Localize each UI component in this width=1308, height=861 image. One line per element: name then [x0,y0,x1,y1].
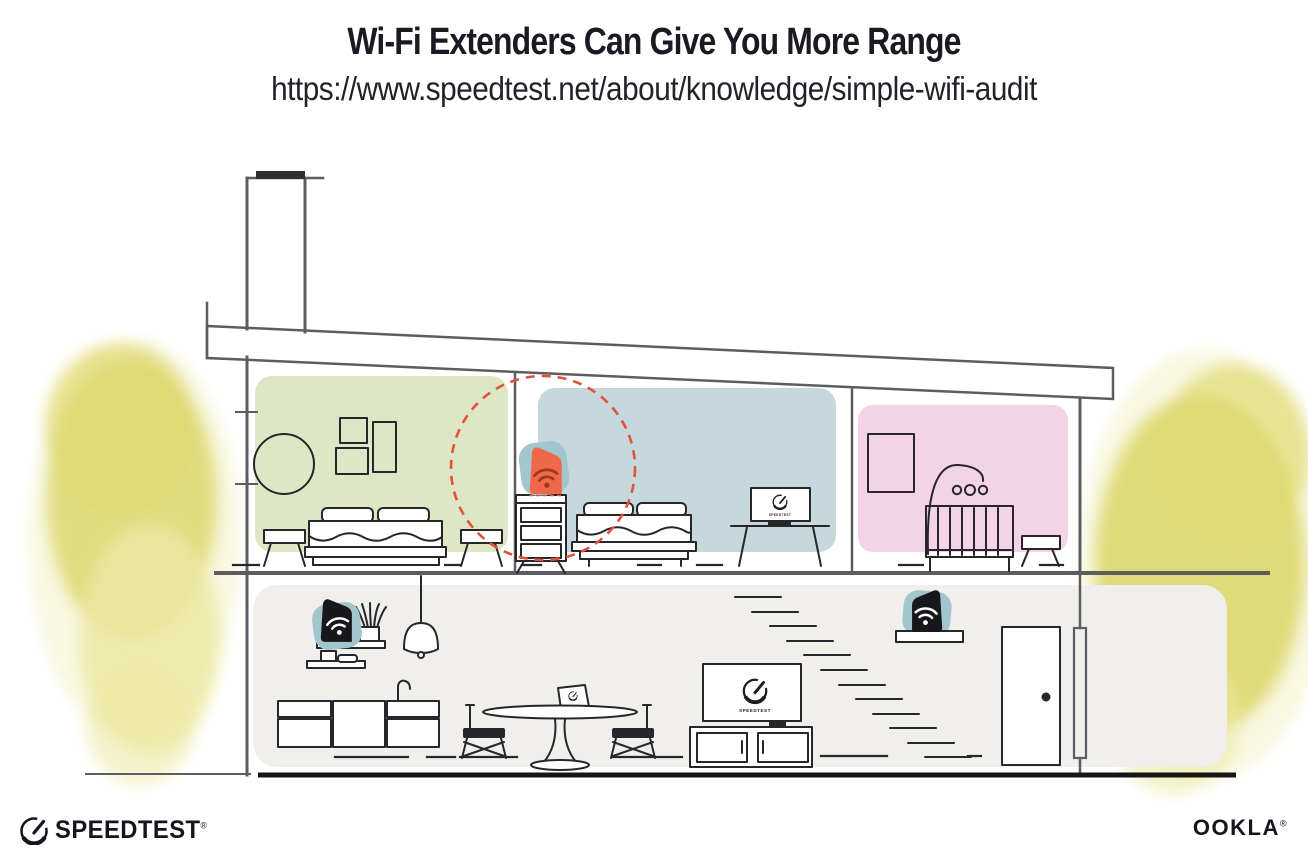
tv-area: SPEEDTEST [690,664,812,767]
registered-mark: ® [1280,819,1288,829]
shelf [896,631,963,642]
dresser [516,495,566,573]
infographic-page: Wi-Fi Extenders Can Give You More Range … [0,0,1308,861]
ookla-logo: OOKLA® [1193,815,1288,841]
wifi-router-living-room [310,599,363,651]
floor-marks-downstairs [335,756,981,757]
wifi-extender-highlighted [517,439,571,497]
speedtest-logo-text: SPEEDTEST® [55,816,207,845]
speedtest-gauge-icon [20,817,48,845]
foliage-left [30,340,240,785]
ookla-logo-text: OOKLA [1193,815,1280,840]
registered-mark: ® [200,821,207,831]
chimney [247,171,323,332]
speedtest-logo: SPEEDTEST® [20,816,215,845]
house-illustration: SPEEDTEST [0,0,1308,861]
tv-screen-label: SPEEDTEST [769,513,792,517]
entry-door [1002,627,1060,765]
tv-screen-label: SPEEDTEST [739,708,771,713]
door-knob [1042,693,1051,702]
